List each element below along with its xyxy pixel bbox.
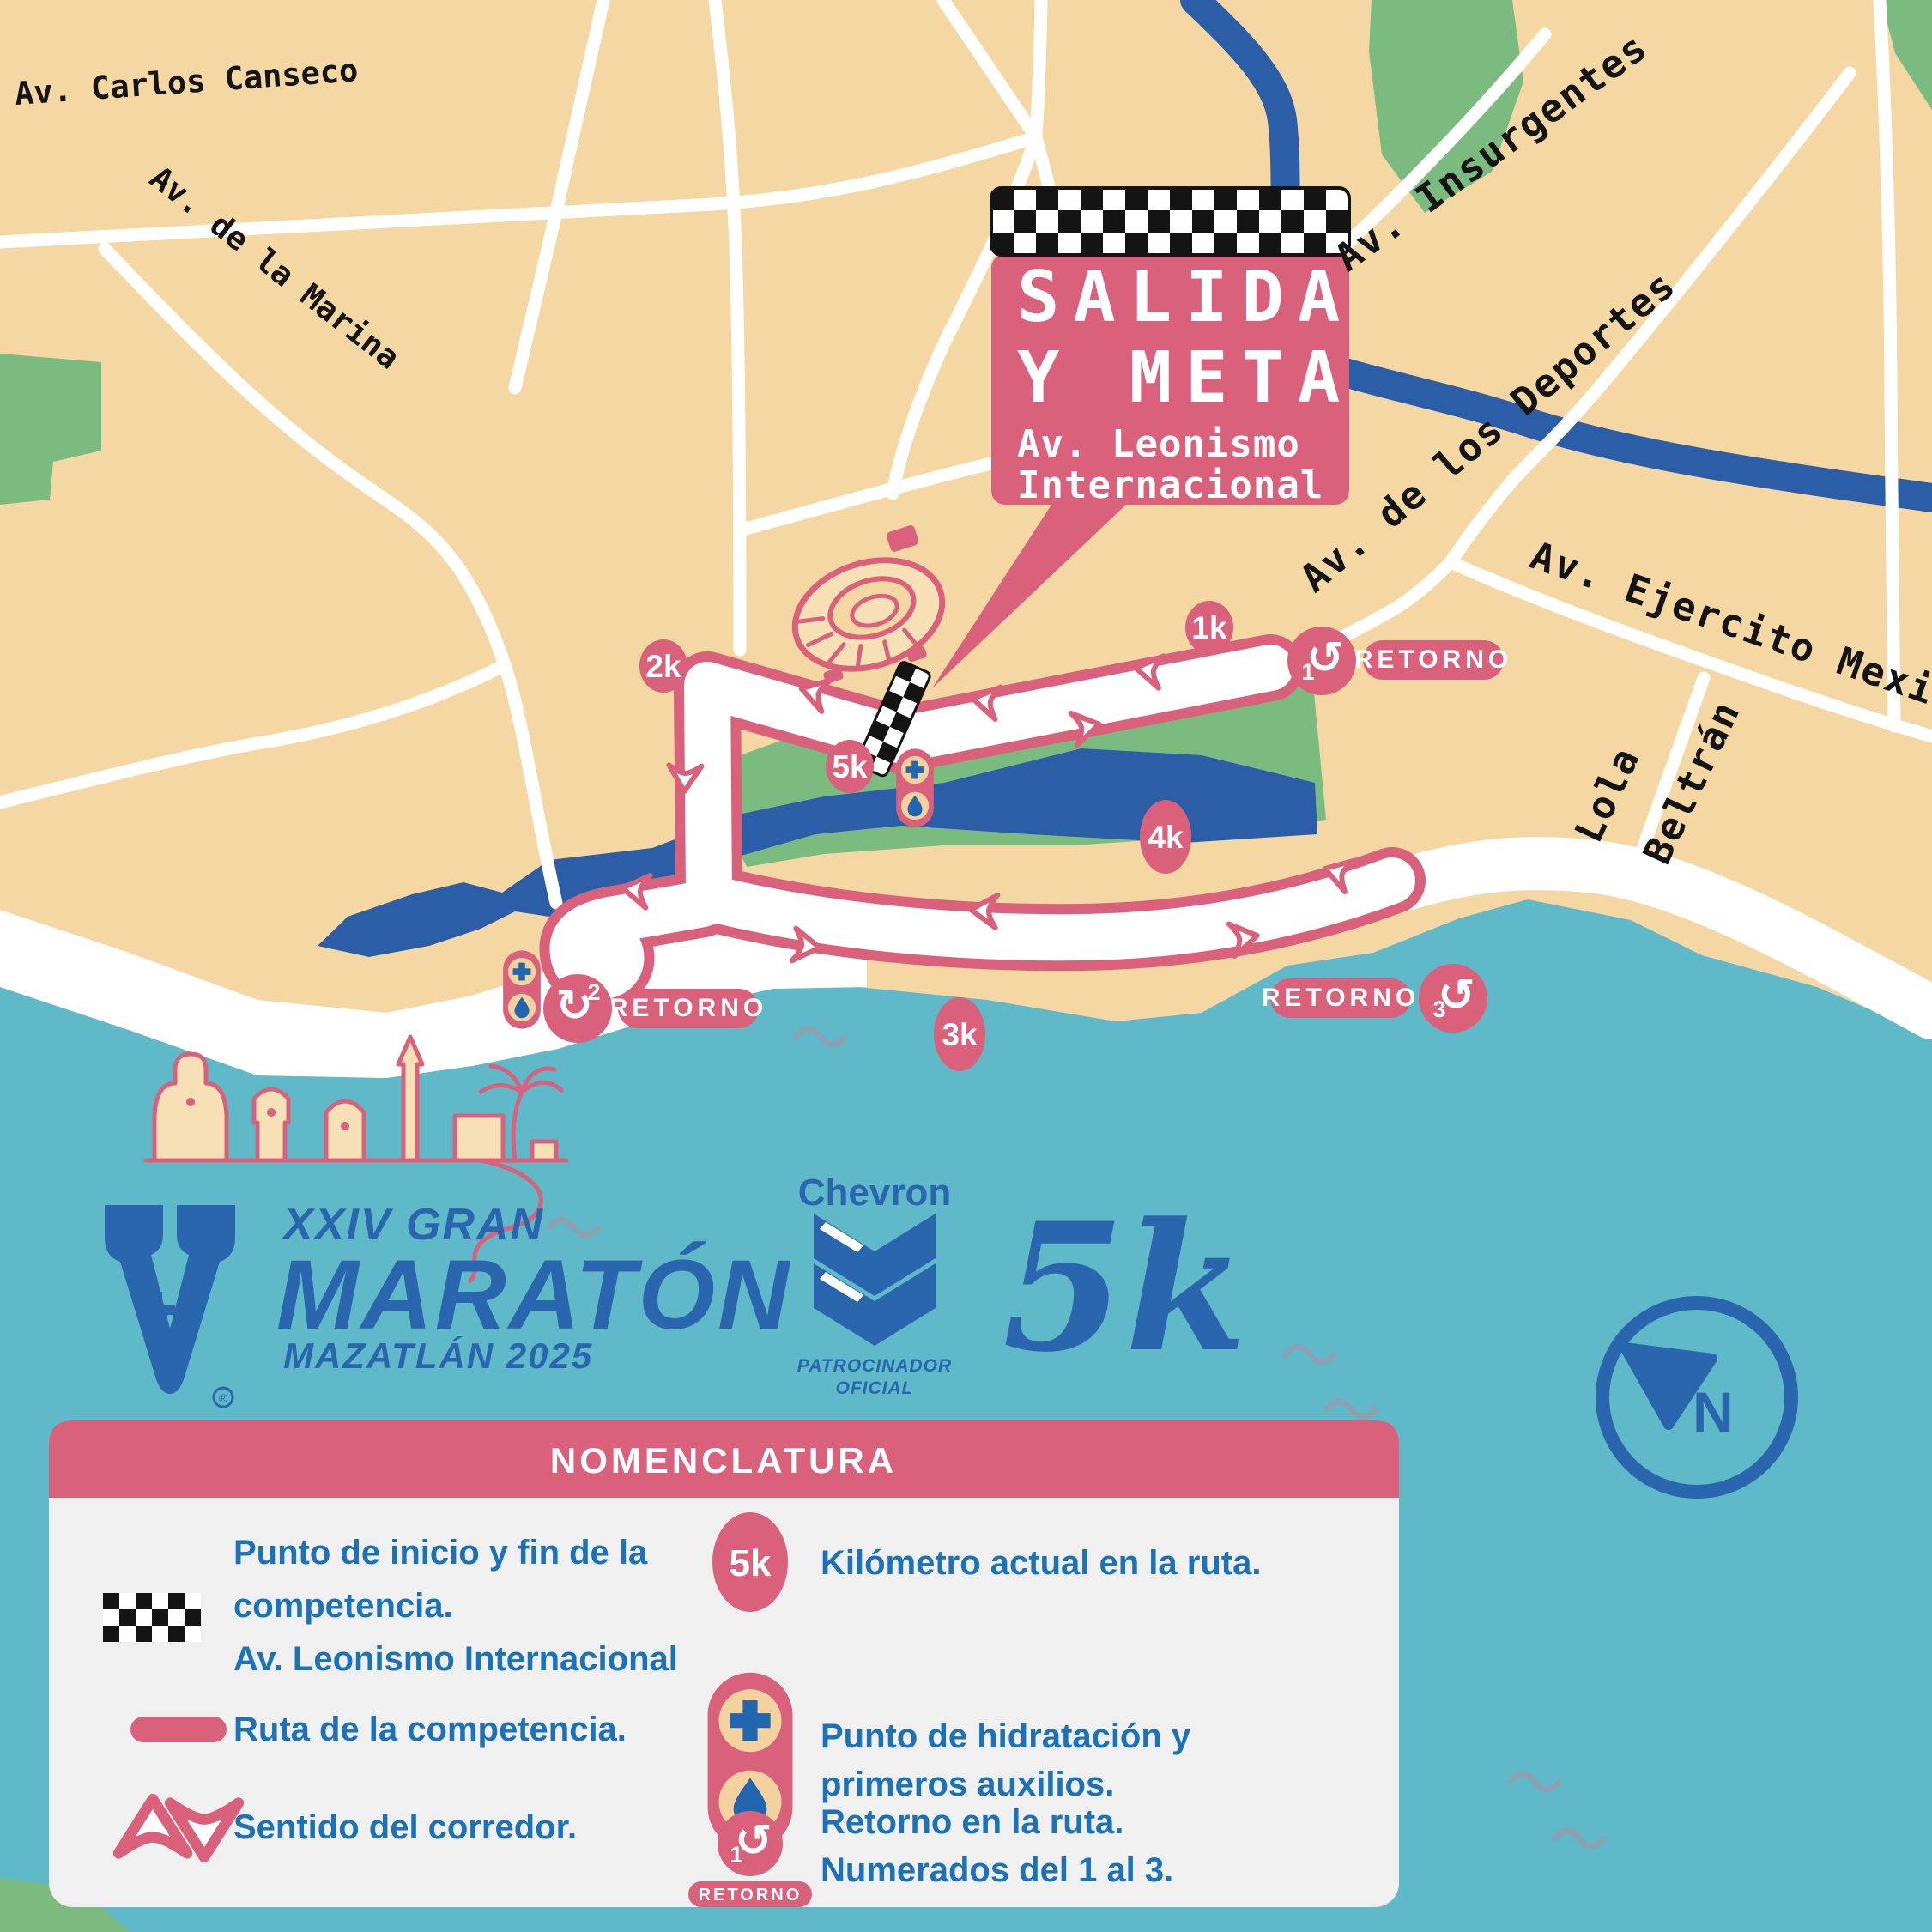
retorno-number: 1 bbox=[1301, 659, 1314, 685]
retorno-pill-label: RETORNO bbox=[609, 994, 767, 1022]
km-marker-2k: 2k bbox=[639, 639, 687, 693]
chevron-logo: Chevron PATROCINADOR OFICIAL bbox=[797, 1172, 952, 1398]
legend-panel: NOMENCLATURA Punto de inicio y fin de la… bbox=[49, 1420, 1399, 1907]
sponsor-role-line2: OFICIAL bbox=[836, 1378, 914, 1398]
km-label: 4k bbox=[1148, 820, 1184, 855]
retorno-pill-label: RETORNO bbox=[1354, 645, 1512, 674]
map-canvas: SALIDA Y META Av. Leonismo Internacional… bbox=[0, 0, 1932, 1932]
km-marker-4k: 4k bbox=[1140, 800, 1191, 874]
race-title: MARATÓN bbox=[276, 1240, 791, 1350]
legend-route-label: Ruta de la competencia. bbox=[233, 1711, 627, 1748]
hydration-point-finish bbox=[896, 748, 934, 827]
sponsor-name: Chevron bbox=[798, 1172, 951, 1214]
legend-km-icon: 5k bbox=[712, 1512, 788, 1612]
street-minor-2 bbox=[1036, 0, 1041, 137]
legend-hydration-line2: primeros auxilios. bbox=[821, 1765, 1114, 1803]
legend-retorno-number: 1 bbox=[730, 1842, 742, 1868]
legend-km-badge-text: 5k bbox=[730, 1542, 772, 1584]
callout-title-line1: SALIDA bbox=[1017, 257, 1354, 338]
callout-street-line2: Internacional bbox=[1017, 463, 1323, 507]
registered-mark: ® bbox=[219, 1391, 228, 1405]
legend-start-flag-icon bbox=[103, 1593, 201, 1642]
callout-title-line2: Y META bbox=[1017, 337, 1354, 419]
legend-hydration-line1: Punto de hidratación y bbox=[821, 1717, 1191, 1755]
retorno-number: 2 bbox=[587, 979, 600, 1005]
hydration-point-west bbox=[503, 950, 541, 1028]
retorno-pill-label: RETORNO bbox=[1262, 984, 1420, 1012]
legend-start-line2: competencia. bbox=[233, 1587, 453, 1625]
legend-route-line-icon bbox=[130, 1717, 227, 1742]
legend-start-line1: Punto de inicio y fin de la bbox=[233, 1534, 648, 1572]
km-marker-3k: 3k bbox=[934, 997, 985, 1071]
legend-retorno-minipill-label: RETORNO bbox=[699, 1886, 802, 1905]
km-marker-5k: 5k bbox=[826, 740, 874, 793]
retorno-number: 3 bbox=[1432, 996, 1445, 1022]
legend-retorno-line1: Retorno en la ruta. bbox=[821, 1803, 1123, 1841]
legend-direction-label: Sentido del corredor. bbox=[233, 1808, 577, 1846]
distance-headline: 5k bbox=[1002, 1185, 1247, 1391]
legend-km-label: Kilómetro actual en la ruta. bbox=[821, 1544, 1261, 1582]
callout-checkered-banner bbox=[991, 188, 1349, 255]
race-location: MAZATLÁN 2025 bbox=[283, 1335, 593, 1376]
legend-start-line3: Av. Leonismo Internacional bbox=[233, 1640, 678, 1678]
km-label: 1k bbox=[1191, 610, 1227, 645]
race-map-poster: SALIDA Y META Av. Leonismo Internacional… bbox=[0, 0, 1932, 1932]
km-marker-1k: 1k bbox=[1185, 601, 1233, 654]
legend-retorno-line2: Numerados del 1 al 3. bbox=[821, 1851, 1173, 1889]
km-label: 5k bbox=[832, 749, 868, 784]
callout-street-line1: Av. Leonismo bbox=[1017, 422, 1300, 466]
km-label: 3k bbox=[942, 1017, 978, 1052]
legend-title: NOMENCLATURA bbox=[550, 1440, 897, 1481]
sponsor-role-line1: PATROCINADOR bbox=[797, 1356, 952, 1376]
compass-north-label: N bbox=[1693, 1380, 1734, 1444]
km-label: 2k bbox=[645, 649, 681, 684]
